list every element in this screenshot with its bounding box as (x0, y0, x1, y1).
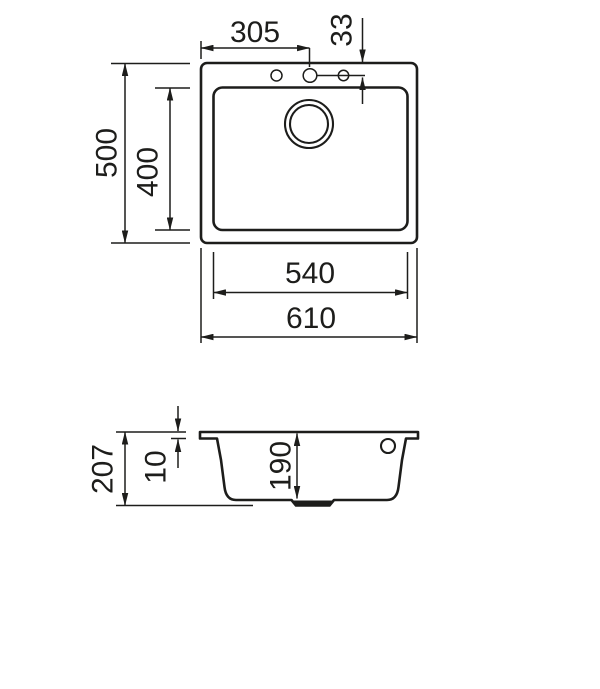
sink-technical-drawing: 305 33 500 400 540 (0, 0, 600, 689)
dimension-label-400: 400 (132, 147, 165, 197)
bowl-inner-edge (214, 88, 408, 231)
dimension-label-10: 10 (140, 450, 173, 483)
dimension-bowl-inner-depth: 190 (265, 434, 298, 499)
section-outline (200, 432, 418, 506)
dimension-label-540: 540 (285, 257, 335, 290)
dimension-label-500: 500 (91, 128, 124, 178)
dimension-bowl-width: 540 (214, 252, 408, 299)
top-view: 305 33 500 400 540 (91, 13, 418, 343)
dimension-label-190: 190 (265, 441, 298, 491)
dimension-label-33: 33 (326, 13, 359, 46)
section-view: 207 10 190 (87, 406, 419, 506)
dimension-label-207: 207 (87, 444, 120, 494)
dimension-label-305: 305 (230, 16, 280, 49)
drain-recess (293, 501, 333, 506)
dimension-bowl-depth: 400 (132, 88, 191, 230)
dimension-rim-height: 10 (140, 406, 187, 484)
dimension-tap-hole-center-x: 305 (201, 16, 310, 67)
dimension-label-610: 610 (286, 302, 336, 335)
